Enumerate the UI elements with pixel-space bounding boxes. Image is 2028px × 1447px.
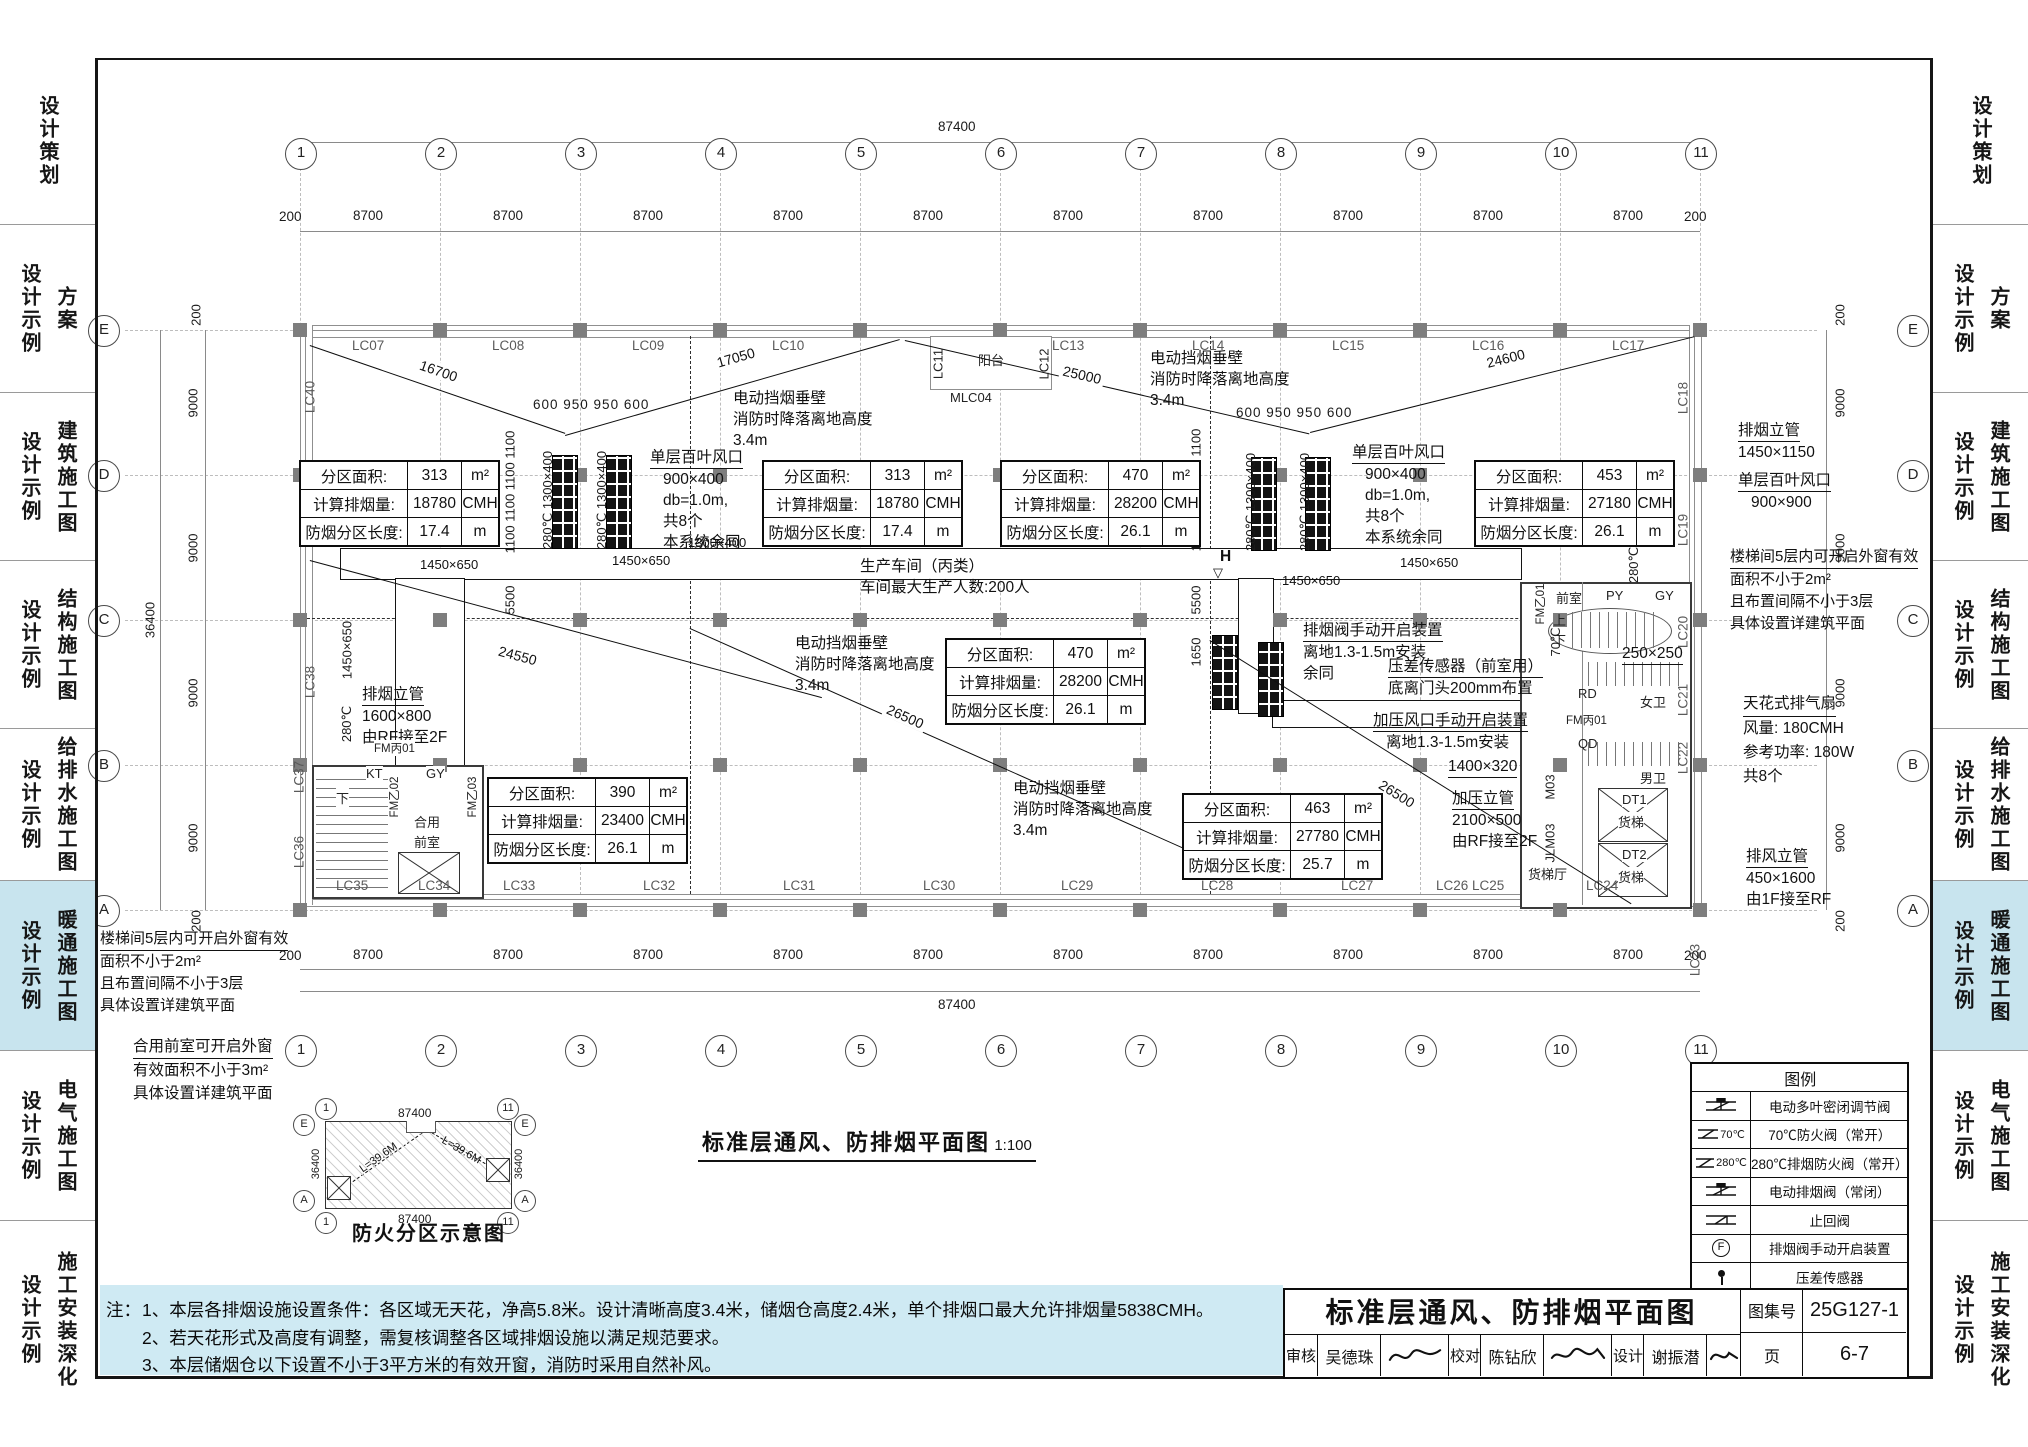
table-value: 470 <box>1108 462 1162 489</box>
table-label: 计算排烟量: <box>301 489 407 517</box>
sidebar-label: 建筑施工图 <box>1984 420 2013 535</box>
field-value-designer: 谢振潜 <box>1643 1334 1707 1376</box>
grid-column-bubble-top: 7 <box>1125 138 1157 170</box>
table-value: 313 <box>407 462 461 489</box>
overall-dim-top: 87400 <box>938 116 976 137</box>
window-label: LC38 <box>303 666 318 698</box>
smoke-curtain-note: 电动挡烟垂壁消防时降落离地高度3.4m <box>795 633 935 696</box>
window-label: LC40 <box>303 381 318 413</box>
signature-reviewer <box>1380 1334 1449 1376</box>
sidebar-sublabel: 设计示例 <box>15 431 44 523</box>
door-label: FM丙01 <box>374 740 415 756</box>
window-label: LC18 <box>1676 382 1691 414</box>
room-label: 女卫 <box>1640 692 1666 711</box>
grid-column-bubble-bottom: 2 <box>425 1035 457 1067</box>
grid-row-bubble-right: E <box>1897 315 1929 347</box>
window-label: LC28 <box>1201 878 1233 893</box>
legend-label: 止回阀 <box>1750 1206 1909 1235</box>
dim-line <box>160 330 161 910</box>
bay-dimension-top: 8700 <box>1193 205 1223 226</box>
signature-designer <box>1706 1334 1741 1376</box>
window-label: LC35 <box>336 878 368 893</box>
field-label-reviewer: 审核 <box>1285 1334 1317 1376</box>
sidebar-sublabel: 设计示例 <box>1948 431 1977 523</box>
window-label: LC32 <box>643 878 675 893</box>
grid-row-bubble-right: D <box>1897 460 1929 492</box>
fire-dim: 36400 <box>310 1149 322 1180</box>
sidebar-sublabel: 设计示例 <box>15 1090 44 1182</box>
sidebar-label: 设计策划 <box>1966 95 1995 187</box>
bay-dimension-bottom: 8700 <box>353 944 383 965</box>
pressurization-riser-note: 加压立管 2100×500 由RF接至2F <box>1452 788 1537 852</box>
table-value: 18780 <box>407 489 461 517</box>
window-label: LC08 <box>492 338 524 353</box>
zone-table-1: 分区面积:313m² 计算排烟量:18780CMH 防烟分区长度:17.4m <box>299 460 500 547</box>
grid-column-bubble-top: 3 <box>565 138 597 170</box>
table-label: 计算排烟量: <box>1184 822 1290 850</box>
valve-280-label: 280℃ 1300×400 <box>1297 453 1313 551</box>
title-block-title: 标准层通风、防排烟平面图 <box>1283 1288 1740 1334</box>
room-label-up: 上 <box>1553 610 1566 629</box>
room-label-shared-lobby: 合用 <box>414 812 440 831</box>
column-marker <box>853 903 867 917</box>
room-label-shared-lobby: 前室 <box>414 832 440 851</box>
fire-valve-70-icon: 70℃ <box>1692 1121 1750 1150</box>
table-unit: m <box>1107 695 1144 723</box>
manual-open-device-icon: F <box>1692 1235 1750 1264</box>
window-label: LC37 <box>292 761 307 793</box>
grid-column-bubble-top: 4 <box>705 138 737 170</box>
table-value: 313 <box>870 462 924 489</box>
atlas-sheet: 设计策划 设计示例方案 设计示例建筑施工图 设计示例结构施工图 设计示例给排水施… <box>0 0 2028 1447</box>
column-marker <box>1133 613 1147 627</box>
workshop-label: 生产车间（丙类）车间最大生产人数:200人 <box>860 556 1030 598</box>
bay-dimension-left: 9000 <box>186 533 201 562</box>
dim-line <box>300 991 1700 992</box>
table-value: 17.4 <box>870 517 924 545</box>
dim-line <box>205 330 206 910</box>
column-marker <box>573 323 587 337</box>
elevator-label: 货梯 <box>1618 867 1644 886</box>
column-marker <box>1413 903 1427 917</box>
window-label: LC19 <box>1676 514 1691 546</box>
table-label: 防烟分区长度: <box>1184 850 1290 878</box>
grid-column-bubble-bottom: 9 <box>1405 1035 1437 1067</box>
sidebar-label: 电气施工图 <box>51 1079 80 1194</box>
grid-column-bubble-bottom: 5 <box>845 1035 877 1067</box>
end-dimension: 200 <box>189 304 204 326</box>
window-label: LC29 <box>1061 878 1093 893</box>
table-unit: CMH <box>1107 667 1144 695</box>
zone-length-label: 24550 <box>494 642 542 669</box>
page-label: 页 <box>1740 1332 1803 1376</box>
sidebar-label: 结构施工图 <box>51 588 80 703</box>
smoke-curtain-note: 电动挡烟垂壁消防时降落离地高度3.4m <box>1013 778 1153 841</box>
room-label: KT <box>366 766 383 781</box>
end-dimension: 200 <box>189 910 204 932</box>
bay-dimension-top: 8700 <box>913 205 943 226</box>
sidebar-item-scheme[interactable]: 设计示例方案 <box>0 224 95 393</box>
room-label: PY <box>1606 588 1623 603</box>
sidebar-label: 方案 <box>1984 286 2013 332</box>
sidebar-label: 设计策划 <box>33 95 62 187</box>
window-label: LC15 <box>1332 338 1364 353</box>
room-label: GY <box>1655 588 1674 603</box>
sidebar-right-design-planning[interactable]: 设计策划 <box>1933 58 2028 224</box>
sidebar-item-electrical[interactable]: 设计示例电气施工图 <box>0 1050 95 1221</box>
sidebar-sublabel: 设计示例 <box>15 263 44 355</box>
column-marker <box>713 903 727 917</box>
column-marker <box>993 613 1007 627</box>
smoke-louvre <box>1212 635 1238 710</box>
bay-dimension-left: 9000 <box>186 388 201 417</box>
table-value: 18780 <box>870 489 924 517</box>
main-title-text: 标准层通风、防排烟平面图 <box>702 1130 990 1155</box>
grid-column-bubble-bottom: 4 <box>705 1035 737 1067</box>
window-label: LC20 <box>1676 616 1691 648</box>
fire-grid-bubble: 11 <box>497 1098 519 1120</box>
table-label: 计算排烟量: <box>1476 489 1582 517</box>
bay-dimension-left: 9000 <box>186 823 201 852</box>
table-unit: CMH <box>1162 489 1199 517</box>
sidebar-item-architecture[interactable]: 设计示例建筑施工图 <box>0 392 95 561</box>
legend-label: 70℃防火阀（常开） <box>1750 1121 1909 1150</box>
zone-length-label: 25000 <box>1058 362 1105 388</box>
fire-grid-bubble: E <box>514 1114 536 1136</box>
bay-dimension-bottom: 8700 <box>1473 944 1503 965</box>
legend-label: 电动排烟阀（常闭） <box>1750 1178 1909 1207</box>
room-label: GY <box>426 766 445 781</box>
end-dimension: 200 <box>279 206 302 227</box>
dim-5500: 5500 <box>1189 586 1204 615</box>
sidebar-sublabel: 设计示例 <box>15 1274 44 1366</box>
legend-table: 图例 电动多叶密闭调节阀 70℃ 70℃防火阀（常开） 280℃ 280℃排烟防… <box>1690 1062 1909 1294</box>
window-label: LC30 <box>923 878 955 893</box>
fire-diagram-shaft <box>327 1176 351 1200</box>
table-label: 防烟分区长度: <box>489 834 595 862</box>
sidebar-label: 给排水施工图 <box>51 736 80 874</box>
leader-line <box>310 560 822 698</box>
column-marker <box>433 903 447 917</box>
bay-dimension-bottom: 8700 <box>1193 944 1223 965</box>
zone-length-label: 16700 <box>415 356 463 386</box>
sidebar-sublabel: 设计示例 <box>1948 759 1977 851</box>
sidebar-label: 建筑施工图 <box>51 420 80 535</box>
zone-table-3: 分区面积:470m² 计算排烟量:28200CMH 防烟分区长度:26.1m <box>1000 460 1201 547</box>
sidebar-right-structure[interactable]: 设计示例结构施工图 <box>1933 560 2028 729</box>
grid-column-bubble-top: 11 <box>1685 138 1717 170</box>
table-unit: CMH <box>1636 489 1673 517</box>
duct-size-label: 1450×650 <box>612 550 670 571</box>
zone-length-label: 26500 <box>881 700 929 733</box>
column-marker <box>993 323 1007 337</box>
duct-size-label-v: 1450×650 <box>340 621 355 679</box>
smoke-riser-left-note: 排烟立管 1600×800 由RF接至2F <box>362 684 447 748</box>
notes-panel: 注： 1、本层各排烟设施设置条件：各区域无天花，净高5.8米。设计清晰高度3.4… <box>100 1285 1283 1375</box>
table-label: 分区面积: <box>1002 462 1108 489</box>
sidebar-right-architecture[interactable]: 设计示例建筑施工图 <box>1933 392 2028 561</box>
field-label-checker: 校对 <box>1448 1334 1481 1376</box>
bay-dimension-top: 8700 <box>1333 205 1363 226</box>
sidebar-right-construction[interactable]: 设计示例施工安装深化 <box>1933 1220 2028 1419</box>
door-label: JLM03 <box>1543 823 1558 862</box>
fire-grid-bubble: 1 <box>315 1098 337 1120</box>
table-unit: CMH <box>1344 822 1381 850</box>
sidebar-label: 施工安装深化 <box>51 1251 80 1389</box>
table-unit: m² <box>461 462 498 489</box>
grid-column-bubble-bottom: 10 <box>1545 1035 1577 1067</box>
table-value: 26.1 <box>1582 517 1636 545</box>
table-label: 分区面积: <box>1476 462 1582 489</box>
room-label: QD <box>1578 736 1598 751</box>
table-unit: m <box>461 517 498 545</box>
louvre-dim-chain: 1100 1100 1100 1100 <box>503 431 518 554</box>
table-value: 23400 <box>595 806 649 834</box>
end-dimension: 200 <box>1833 304 1848 326</box>
table-unit: CMH <box>461 489 498 517</box>
valve-70-label: 70℃ <box>1548 627 1564 656</box>
bay-dimension-bottom: 8700 <box>633 944 663 965</box>
column-marker <box>1133 758 1147 772</box>
window-label: LC12 <box>1037 348 1052 379</box>
table-unit: m² <box>1162 462 1199 489</box>
grid-column-bubble-top: 6 <box>985 138 1017 170</box>
smoke-curtain-note: 电动挡烟垂壁消防时降落离地高度3.4m <box>733 388 873 451</box>
column-marker <box>853 323 867 337</box>
pressurization-manual-note: 加压风口手动开启装置 离地1.3-1.5m安装 <box>1373 710 1528 753</box>
column-marker <box>1553 323 1567 337</box>
duct-size-label: 250×250 <box>1622 643 1683 665</box>
bay-dimension-bottom: 8700 <box>1053 944 1083 965</box>
main-title-scale: 1:100 <box>994 1137 1032 1154</box>
stairwell-window-note: 楼梯间5层内可开启外窗有效 面积不小于2m² 且布置间隔不小于3层 具体设置详建… <box>1730 546 1918 635</box>
dim-5500: 5500 <box>503 586 518 615</box>
dim-line <box>300 969 1700 970</box>
table-unit: m² <box>649 779 686 806</box>
bay-dimension-top: 8700 <box>633 205 663 226</box>
table-unit: m <box>1162 517 1199 545</box>
zone-table-6: 分区面积:390m² 计算排烟量:23400CMH 防烟分区长度:26.1m <box>487 777 688 864</box>
table-label: 计算排烟量: <box>947 667 1053 695</box>
column-marker <box>1693 468 1707 482</box>
sidebar-right-scheme[interactable]: 设计示例方案 <box>1933 224 2028 393</box>
table-value: 470 <box>1053 640 1107 667</box>
table-unit: CMH <box>649 806 686 834</box>
table-unit: m² <box>1344 795 1381 822</box>
column-marker <box>1273 903 1287 917</box>
table-value: 27780 <box>1290 822 1344 850</box>
window-label: LC24 <box>1586 878 1618 893</box>
frame-left <box>95 58 98 1378</box>
shared-lobby-window-note: 合用前室可开启外窗 有效面积不小于3m² 具体设置详建筑平面 <box>133 1035 273 1105</box>
sidebar-item-hvac-active[interactable]: 设计示例暖通施工图 <box>0 880 95 1051</box>
column-marker <box>1693 903 1707 917</box>
column-marker <box>853 613 867 627</box>
table-label: 防烟分区长度: <box>947 695 1053 723</box>
exhaust-riser-note: 排风立管 450×1600 由1F接至RF <box>1746 846 1831 910</box>
door-label: M03 <box>1543 774 1558 799</box>
window-label: LC16 <box>1472 338 1504 353</box>
sidebar-sublabel: 设计示例 <box>1948 1274 1977 1366</box>
duct-size-label: 1450×650 <box>1282 570 1340 591</box>
table-value: 26.1 <box>595 834 649 862</box>
end-dimension: 200 <box>1833 910 1848 932</box>
table-label: 分区面积: <box>489 779 595 806</box>
stair-treads <box>316 772 388 888</box>
overall-dim-left: 36400 <box>143 602 158 638</box>
valve-280-label: 280℃ <box>1626 547 1642 583</box>
table-value: 26.1 <box>1108 517 1162 545</box>
balcony-label: 阳台 <box>978 350 1004 369</box>
sidebar-sublabel: 设计示例 <box>1948 1090 1977 1182</box>
duct-size-label: 1450×650 <box>1400 552 1458 573</box>
note-line-1: 1、本层各排烟设施设置条件：各区域无天花，净高5.8米。设计清晰高度3.4米，储… <box>142 1297 1214 1322</box>
table-value: 26.1 <box>1053 695 1107 723</box>
sidebar-label: 方案 <box>51 286 80 332</box>
fire-dim: 87400 <box>398 1103 431 1124</box>
note-line-2: 2、若天花形式及高度有调整，需复核调整各区域排烟设施以满足规范要求。 <box>142 1325 729 1350</box>
column-marker <box>713 758 727 772</box>
field-value-reviewer: 吴德珠 <box>1317 1334 1381 1376</box>
column-marker <box>1693 613 1707 627</box>
bay-dimension-left: 9000 <box>186 678 201 707</box>
room-label: 货梯厅 <box>1528 864 1567 883</box>
fire-diagram-shaft <box>486 1158 510 1182</box>
column-marker <box>1693 323 1707 337</box>
table-label: 计算排烟量: <box>489 806 595 834</box>
window-label: LC33 <box>503 878 535 893</box>
column-marker <box>1133 323 1147 337</box>
door-label: FM乙01 <box>1532 584 1548 625</box>
table-unit: CMH <box>924 489 961 517</box>
zone-table-2: 分区面积:313m² 计算排烟量:18780CMH 防烟分区长度:17.4m <box>762 460 963 547</box>
sidebar-item-structure[interactable]: 设计示例结构施工图 <box>0 560 95 729</box>
frame-top <box>95 58 1933 60</box>
atlas-number-value: 25G127-1 <box>1802 1288 1906 1332</box>
sidebar-label: 暖通施工图 <box>51 909 80 1024</box>
column-marker <box>433 613 447 627</box>
bay-dimension-bottom: 8700 <box>773 944 803 965</box>
table-label: 计算排烟量: <box>764 489 870 517</box>
window-label: LC13 <box>1052 338 1084 353</box>
table-value: 463 <box>1290 795 1344 822</box>
sidebar-right-plumbing[interactable]: 设计示例给排水施工图 <box>1933 728 2028 881</box>
bay-dimension-bottom: 8700 <box>1333 944 1363 965</box>
bay-dimension-top: 8700 <box>773 205 803 226</box>
valve-280-label: 280℃ 1300×400 <box>1243 453 1259 551</box>
column-marker <box>1553 903 1567 917</box>
room-label: 男卫 <box>1640 768 1666 787</box>
door-label: FM丙01 <box>1566 712 1607 728</box>
field-label-designer: 设计 <box>1611 1334 1644 1376</box>
window-label: LC27 <box>1341 878 1373 893</box>
toilet-stalls <box>1588 662 1680 686</box>
notes-prefix: 注： <box>106 1297 141 1322</box>
valve-280-label: 280℃ 1300×400 <box>594 451 610 549</box>
column-marker <box>713 323 727 337</box>
window-label: LC34 <box>418 878 450 893</box>
table-label: 防烟分区长度: <box>1002 517 1108 545</box>
bay-dimension-right: 9000 <box>1833 823 1848 852</box>
elevator-label: 货梯 <box>1618 812 1644 831</box>
grid-column-bubble-bottom: 6 <box>985 1035 1017 1067</box>
fire-dim: 36400 <box>513 1149 525 1180</box>
table-value: 28200 <box>1108 489 1162 517</box>
louvre-900-note: 单层百叶风口 900×900 <box>1738 470 1831 513</box>
column-marker <box>1133 903 1147 917</box>
main-drawing-title: 标准层通风、防排烟平面图 1:100 <box>698 1132 1036 1162</box>
bay-dimension-top: 8700 <box>1473 205 1503 226</box>
bay-dimension-bottom: 8700 <box>493 944 523 965</box>
room-label-down: 下 <box>336 788 349 807</box>
leader-line <box>310 345 566 434</box>
column-marker <box>1273 323 1287 337</box>
bay-dimension-bottom: 8700 <box>1613 944 1643 965</box>
sidebar-sublabel: 设计示例 <box>15 759 44 851</box>
table-label: 分区面积: <box>764 462 870 489</box>
window-label: LC10 <box>772 338 804 353</box>
bay-dimension-right: 9000 <box>1833 388 1848 417</box>
fire-valve-280-icon: 280℃ <box>1692 1149 1750 1178</box>
door-label: FM乙03 <box>464 777 480 818</box>
motor-smoke-valve-icon <box>1692 1178 1750 1207</box>
grid-row-bubble-right: A <box>1897 895 1929 927</box>
atlas-number-label: 图集号 <box>1740 1288 1803 1332</box>
sidebar-item-plumbing[interactable]: 设计示例给排水施工图 <box>0 728 95 881</box>
column-marker <box>1273 758 1287 772</box>
column-marker <box>573 758 587 772</box>
table-unit: m <box>1344 850 1381 878</box>
window-label: LC14 <box>1192 338 1224 353</box>
end-dimension: 200 <box>1684 945 1707 966</box>
table-unit: m² <box>924 462 961 489</box>
sidebar-item-design-planning[interactable]: 设计策划 <box>0 58 95 224</box>
room-label: 前室 <box>1556 588 1582 607</box>
sidebar-item-construction[interactable]: 设计示例施工安装深化 <box>0 1220 95 1419</box>
bay-dimension-top: 8700 <box>1053 205 1083 226</box>
sidebar-label: 给排水施工图 <box>1984 736 2013 874</box>
column-marker <box>293 613 307 627</box>
fire-grid-bubble: A <box>514 1190 536 1212</box>
window-label: LC22 <box>1676 742 1691 774</box>
fire-diagram-plan <box>325 1121 512 1209</box>
check-valve-icon <box>1692 1206 1750 1235</box>
table-label: 防烟分区长度: <box>301 517 407 545</box>
grid-column-bubble-bottom: 1 <box>285 1035 317 1067</box>
grid-column-bubble-top: 8 <box>1265 138 1297 170</box>
table-label: 分区面积: <box>301 462 407 489</box>
sidebar-label: 结构施工图 <box>1984 588 2013 703</box>
overall-dim-bottom: 87400 <box>938 994 976 1015</box>
window-label: LC21 <box>1676 684 1691 716</box>
louvre-note: 单层百叶风口 900×400 db=1.0m, 共8个 本系统余同 <box>1352 442 1445 548</box>
legend-label: 排烟阀手动开启装置 <box>1750 1235 1909 1264</box>
field-value-checker: 陈钻欣 <box>1480 1334 1544 1376</box>
sidebar-right-electrical[interactable]: 设计示例电气施工图 <box>1933 1050 2028 1221</box>
zone-table-4: 分区面积:453m² 计算排烟量:27180CMH 防烟分区长度:26.1m <box>1474 460 1675 547</box>
duct-size-label: 1400×320 <box>1448 756 1517 778</box>
louvre-spacing-dim: 600 950 950 600 <box>533 394 649 415</box>
valve-280-label: 280℃ 1300×400 <box>540 451 556 549</box>
door-label: FM乙02 <box>386 777 402 818</box>
sidebar-right-hvac-active[interactable]: 设计示例暖通施工图 <box>1933 880 2028 1051</box>
column-marker <box>1693 758 1707 772</box>
column-marker <box>573 613 587 627</box>
fire-grid-bubble: E <box>293 1114 315 1136</box>
grid-column-bubble-bottom: 3 <box>565 1035 597 1067</box>
table-unit: m <box>649 834 686 862</box>
grid-column-bubble-bottom: 8 <box>1265 1035 1297 1067</box>
